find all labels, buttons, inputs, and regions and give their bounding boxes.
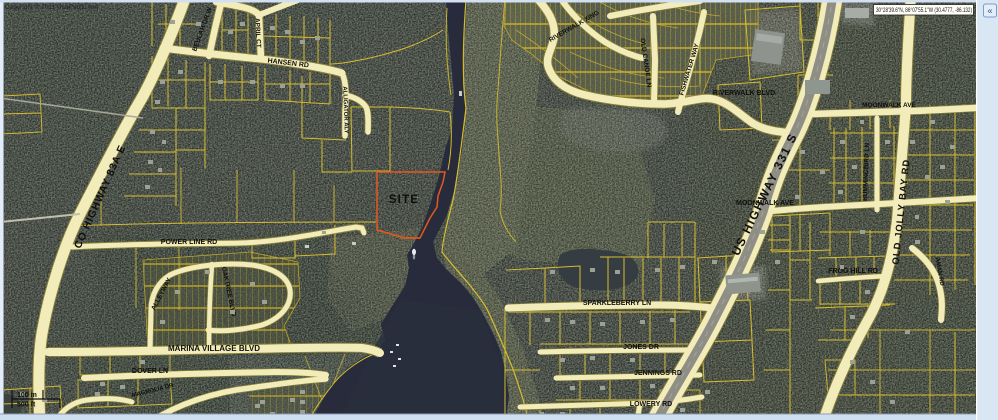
- svg-text:SITE: SITE: [389, 194, 419, 206]
- svg-text:POWER LINE RD: POWER LINE RD: [161, 239, 217, 246]
- svg-text:MARINA VILLAGE BLVD: MARINA VILLAGE BLVD: [168, 344, 260, 353]
- svg-text:JENNINGS RD: JENNINGS RD: [634, 370, 682, 377]
- svg-text:FROG HILL RD: FROG HILL RD: [828, 268, 878, 275]
- svg-text:MOONWALK AVE: MOONWALK AVE: [862, 102, 916, 109]
- svg-text:«: «: [987, 6, 992, 16]
- svg-text:RIVERWALK BLVD: RIVERWALK BLVD: [713, 90, 775, 97]
- svg-text:DOVER LN: DOVER LN: [132, 368, 168, 375]
- svg-text:SPARKLEBERRY LN: SPARKLEBERRY LN: [583, 300, 651, 307]
- svg-text:30°28'39.6"N, 86°07'55.1"W (30: 30°28'39.6"N, 86°07'55.1"W (30.4777, -86…: [876, 8, 972, 14]
- svg-text:Copyright © 2011 UcaPublic.Net: Copyright © 2011 UcaPublic.Net: [5, 3, 98, 11]
- svg-text:LOWERY RD: LOWERY RD: [630, 401, 672, 408]
- svg-text:MOONWALK AVE: MOONWALK AVE: [736, 200, 794, 207]
- svg-text:JONES DR: JONES DR: [623, 344, 659, 351]
- svg-text:100 m: 100 m: [17, 392, 37, 399]
- svg-text:500 ft: 500 ft: [17, 402, 36, 409]
